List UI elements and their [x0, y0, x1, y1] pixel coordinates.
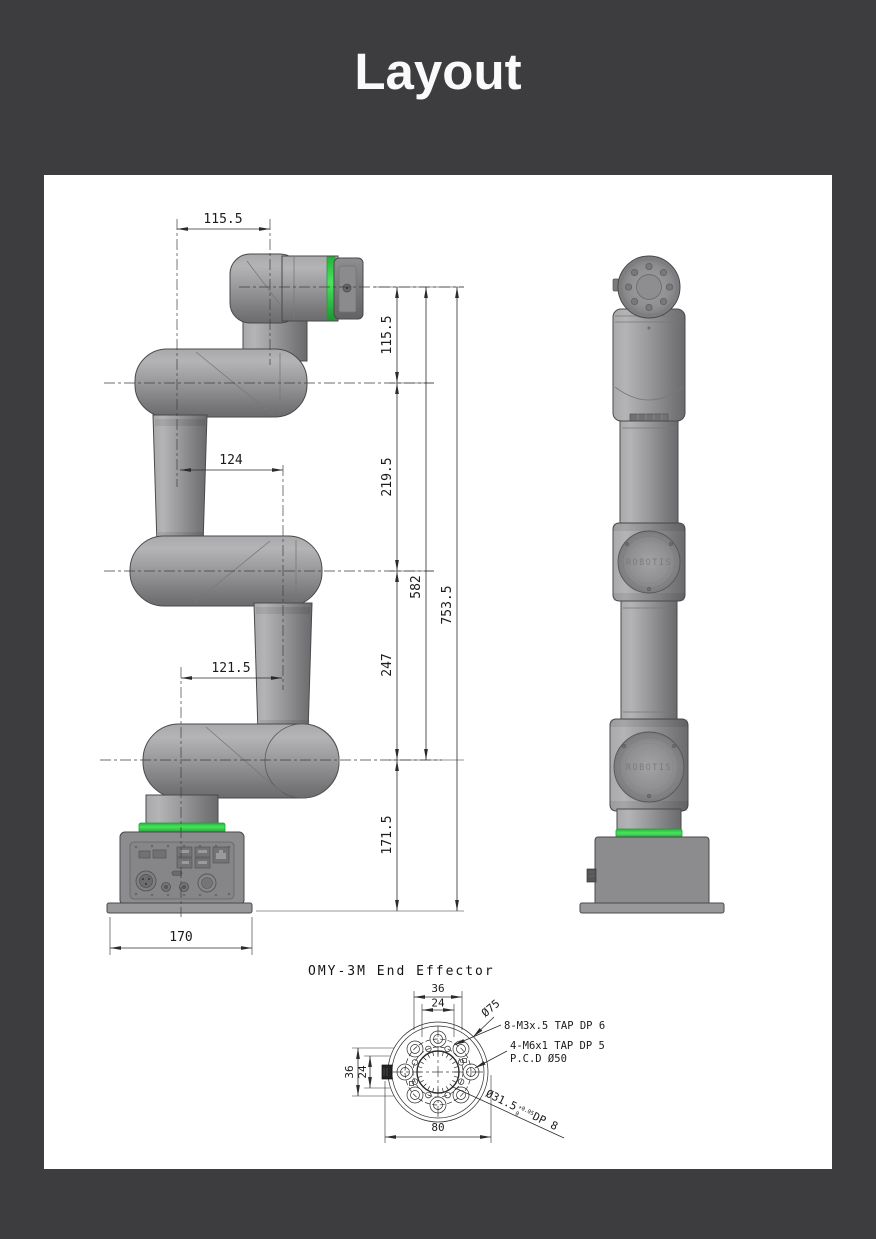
- label-pcd-text: P.C.D Ø50: [510, 1053, 567, 1065]
- label-bore-tol-up: +0.05: [517, 1105, 535, 1118]
- dim-label-span-total: 753.5: [440, 585, 455, 624]
- drawing-panel: 115.5 124 121.5 170 115.5 219.5 247 171.…: [44, 175, 832, 1169]
- dim-label-seg-upper: 219.5: [380, 457, 395, 496]
- dim-label-seg-base: 171.5: [380, 815, 395, 854]
- dim-label-elbow-offset: 124: [219, 453, 243, 468]
- end-effector-title: OMY-3M End Effector: [308, 964, 495, 979]
- joint-logo: ROBOTIS: [626, 763, 672, 773]
- end-effector-drawing: OMY-3M End Effector: [308, 964, 605, 1143]
- label-m6-text: 4-M6x1 TAP DP 5: [510, 1040, 605, 1052]
- dim-vertical-chain: 115.5 219.5 247 171.5 582 753.5: [374, 287, 464, 911]
- label-m3-text: 8-M3x.5 TAP DP 6: [504, 1020, 605, 1032]
- dim-label-ee-top-inner: 24: [431, 997, 445, 1010]
- dim-label-span-arm: 582: [409, 575, 424, 598]
- dim-label-seg-wrist: 115.5: [380, 315, 395, 354]
- dim-label-seg-lower: 247: [380, 653, 395, 676]
- dim-label-ee-left-inner: 24: [356, 1065, 369, 1079]
- front-view-robot: ROBOTIS ROBOTIS: [580, 256, 724, 913]
- label-bore: Ø31.5 +0.05 0 DP 8: [453, 1087, 564, 1138]
- power-switch: [139, 851, 150, 858]
- label-bore-tol-dn: 0: [514, 1111, 520, 1118]
- dim-label-top-width: 115.5: [203, 212, 242, 227]
- dim-label-ee-left-outer: 36: [343, 1065, 356, 1078]
- robot-layout-drawing: 115.5 124 121.5 170 115.5 219.5 247 171.…: [44, 175, 832, 1169]
- dim-label-base-width: 170: [169, 930, 192, 945]
- label-outer-dia-text: Ø75: [479, 997, 503, 1020]
- dim-label-ee-bottom: 80: [431, 1121, 444, 1134]
- dim-base-width: 170: [110, 917, 252, 955]
- dim-label-base-offset: 121.5: [211, 661, 250, 676]
- dim-label-ee-top-outer: 36: [431, 982, 444, 995]
- usb-c-port: [172, 871, 182, 876]
- io-connector: [153, 850, 166, 858]
- label-m6: 4-M6x1 TAP DP 5 P.C.D Ø50: [475, 1040, 605, 1068]
- joint-logo: ROBOTIS: [626, 558, 672, 568]
- page-title: Layout: [0, 42, 876, 101]
- dim-top-width: 115.5: [177, 212, 270, 229]
- layout-page: { "page": { "title": "Layout", "backgrou…: [0, 0, 876, 1239]
- side-view-robot: [107, 254, 363, 913]
- side-connector: [587, 869, 596, 882]
- base-connector-panel: [130, 842, 234, 899]
